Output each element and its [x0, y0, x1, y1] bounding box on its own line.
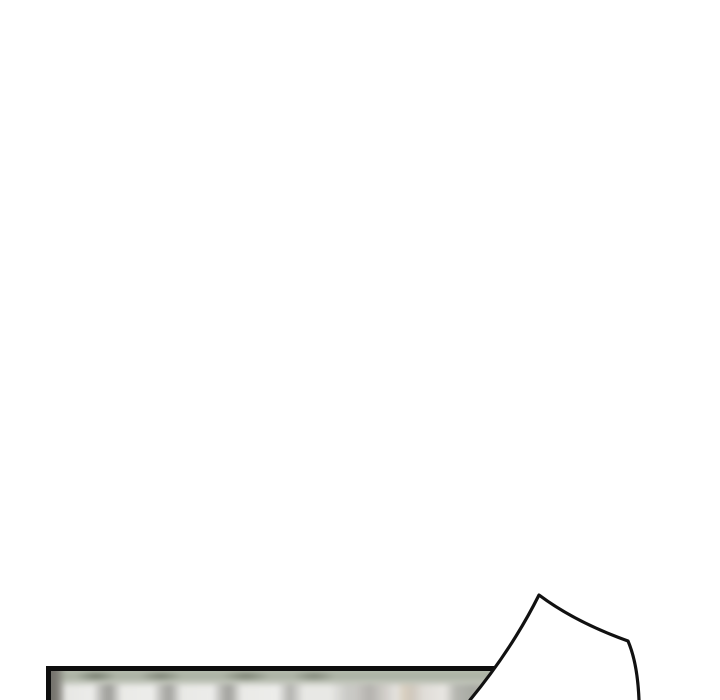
panel-artwork: [46, 666, 630, 700]
comic-panel: [46, 666, 630, 700]
comic-page: [0, 0, 720, 700]
white-peak-shape: [0, 0, 720, 700]
